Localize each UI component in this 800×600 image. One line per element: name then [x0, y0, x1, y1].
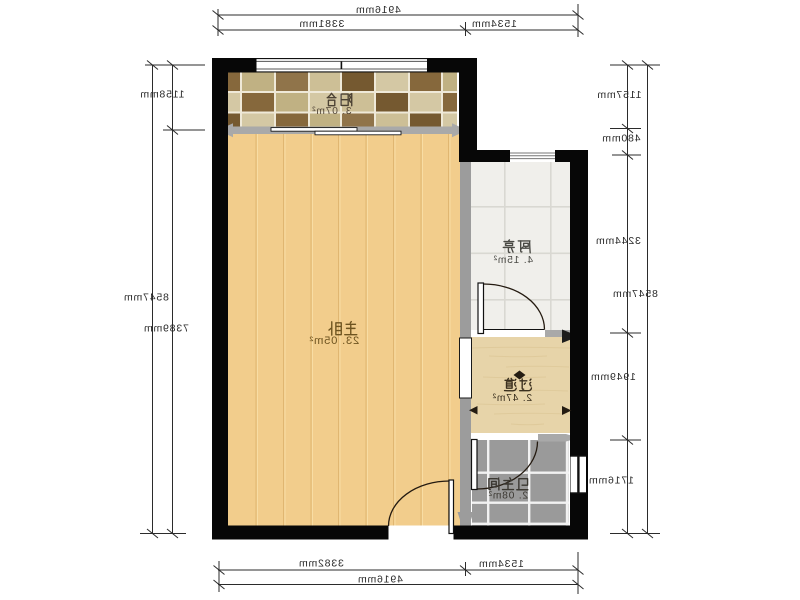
svg-text:3244mm: 3244mm — [595, 235, 641, 247]
svg-text:4916mm: 4916mm — [357, 573, 403, 585]
svg-text:8547mm: 8547mm — [612, 288, 658, 300]
svg-text:480mm: 480mm — [601, 132, 640, 144]
svg-text:4. 15m²: 4. 15m² — [493, 255, 533, 266]
svg-text:7389mm: 7389mm — [143, 322, 189, 334]
svg-text:4916mm: 4916mm — [355, 4, 401, 16]
svg-text:2. 08m²: 2. 08m² — [488, 491, 528, 502]
svg-text:8547mm: 8547mm — [123, 291, 169, 303]
svg-text:1949mm: 1949mm — [590, 371, 636, 383]
svg-text:23. 05m²: 23. 05m² — [309, 335, 360, 347]
svg-text:1157mm: 1157mm — [597, 89, 642, 101]
svg-text:1534mm: 1534mm — [471, 18, 517, 30]
svg-text:3382mm: 3382mm — [298, 557, 344, 569]
svg-text:3381mm: 3381mm — [299, 18, 345, 30]
svg-text:1534mm: 1534mm — [478, 558, 524, 570]
svg-text:1716mm: 1716mm — [588, 474, 634, 486]
svg-text:1158mm: 1158mm — [140, 88, 185, 100]
svg-text:3. 07m²: 3. 07m² — [311, 106, 351, 117]
svg-text:2. 47m²: 2. 47m² — [492, 393, 532, 404]
